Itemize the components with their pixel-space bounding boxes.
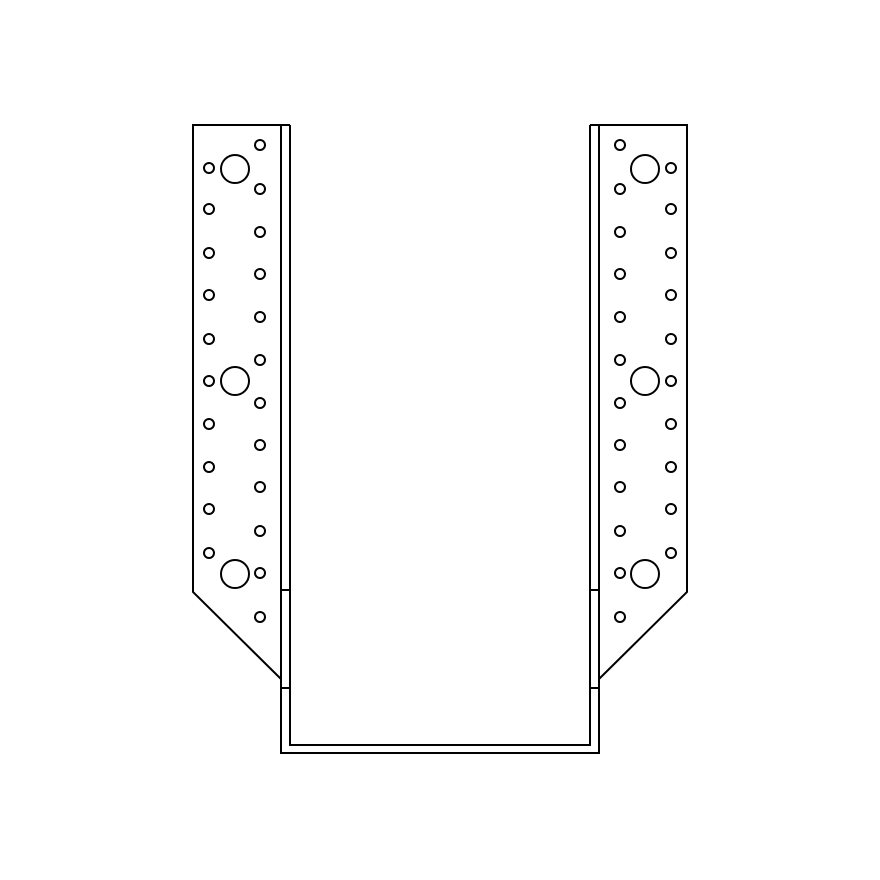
right-outer-nail-hole (666, 163, 676, 173)
right-inner-nail-hole (615, 482, 625, 492)
right-inner-nail-hole (615, 355, 625, 365)
left-large-bolt-hole (221, 155, 249, 183)
left-inner-nail-hole (255, 312, 265, 322)
left-outer-nail-hole (204, 376, 214, 386)
left-outer-nail-hole (204, 163, 214, 173)
left-outer-nail-hole (204, 504, 214, 514)
right-large-bolt-hole (631, 560, 659, 588)
right-large-bolt-hole (631, 155, 659, 183)
right-outer-nail-hole (666, 290, 676, 300)
right-outer-nail-hole (666, 548, 676, 558)
left-inner-nail-hole (255, 227, 265, 237)
left-inner-nail-hole (255, 440, 265, 450)
left-outer-nail-hole (204, 548, 214, 558)
left-flange-outline (193, 125, 290, 679)
right-inner-nail-hole (615, 184, 625, 194)
right-outer-nail-hole (666, 204, 676, 214)
right-inner-nail-hole (615, 568, 625, 578)
right-inner-nail-hole (615, 227, 625, 237)
right-outer-nail-hole (666, 248, 676, 258)
right-inner-nail-hole (615, 398, 625, 408)
right-large-bolt-hole (631, 367, 659, 395)
left-inner-nail-hole (255, 398, 265, 408)
right-outer-nail-hole (666, 419, 676, 429)
left-inner-nail-hole (255, 612, 265, 622)
right-outer-nail-hole (666, 334, 676, 344)
stirrup-outer-edge (281, 125, 599, 753)
right-inner-nail-hole (615, 140, 625, 150)
left-inner-nail-hole (255, 568, 265, 578)
left-outer-nail-hole (204, 290, 214, 300)
left-inner-nail-hole (255, 482, 265, 492)
joist-hanger-line-drawing (0, 0, 880, 880)
left-outer-nail-hole (204, 204, 214, 214)
left-outer-nail-hole (204, 462, 214, 472)
right-outer-nail-hole (666, 376, 676, 386)
left-large-bolt-hole (221, 560, 249, 588)
stirrup-inner-edge (290, 125, 590, 745)
right-inner-nail-hole (615, 526, 625, 536)
right-inner-nail-hole (615, 312, 625, 322)
left-inner-nail-hole (255, 140, 265, 150)
page: { "page": { "width": 880, "height": 880,… (0, 0, 880, 880)
drawing-stage (0, 0, 880, 880)
right-inner-nail-hole (615, 269, 625, 279)
right-outer-nail-hole (666, 504, 676, 514)
left-inner-nail-hole (255, 526, 265, 536)
right-inner-nail-hole (615, 440, 625, 450)
left-inner-nail-hole (255, 355, 265, 365)
left-outer-nail-hole (204, 248, 214, 258)
right-inner-nail-hole (615, 612, 625, 622)
left-outer-nail-hole (204, 334, 214, 344)
left-inner-nail-hole (255, 269, 265, 279)
left-inner-nail-hole (255, 184, 265, 194)
left-large-bolt-hole (221, 367, 249, 395)
right-outer-nail-hole (666, 462, 676, 472)
left-outer-nail-hole (204, 419, 214, 429)
right-flange-outline (590, 125, 687, 679)
